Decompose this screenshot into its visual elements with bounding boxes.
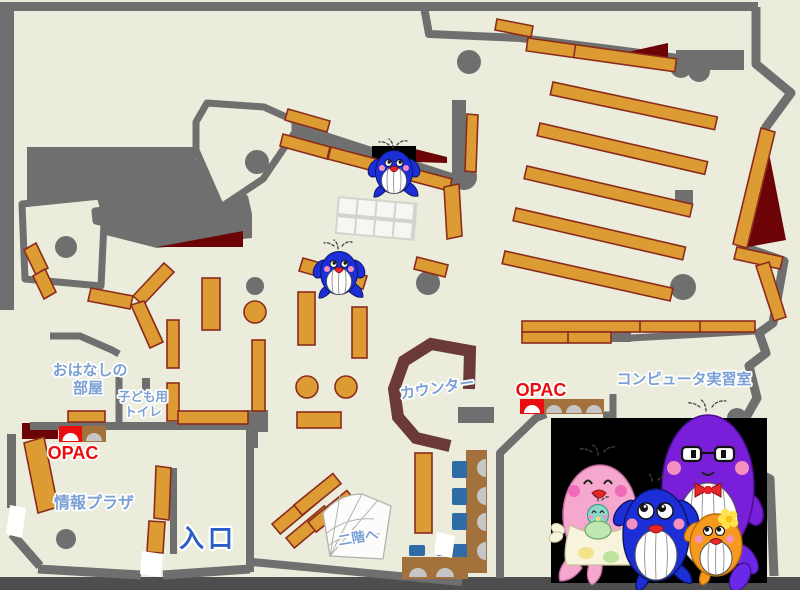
pillar	[56, 529, 76, 549]
opac-terminal-center	[520, 399, 604, 414]
pillar	[55, 236, 77, 258]
pillar	[246, 277, 264, 295]
label-opac-left: OPAC	[48, 443, 99, 463]
label-opac-center: OPAC	[516, 380, 567, 400]
door-gap	[434, 532, 455, 558]
label-kids-toilet-2: トイレ	[124, 405, 162, 419]
floor-map-svg: おはなしの 部屋 子ども用 トイレ OPAC 情報プラザ 入口 カウンター OP…	[0, 0, 800, 590]
label-computer-room: コンピュータ実習室	[616, 370, 751, 388]
stairs-to-2f	[323, 494, 391, 559]
label-storytelling-room-2: 部屋	[73, 379, 103, 397]
chair	[452, 513, 467, 530]
mascot-family-panel	[548, 399, 768, 590]
chair	[409, 545, 425, 556]
table-grid	[335, 196, 418, 241]
chair	[452, 488, 467, 505]
chair	[452, 461, 467, 478]
pillar	[457, 50, 481, 74]
label-info-plaza: 情報プラザ	[54, 493, 134, 512]
opac-terminal-left	[59, 426, 106, 442]
pillar	[245, 150, 269, 174]
label-storytelling-room: おはなしの	[52, 362, 127, 379]
library-floor-map: おはなしの 部屋 子ども用 トイレ OPAC 情報プラザ 入口 カウンター OP…	[0, 0, 800, 590]
pillar	[688, 60, 710, 82]
label-kids-toilet: 子ども用	[118, 390, 168, 404]
pillar	[670, 274, 696, 300]
label-entrance: 入口	[179, 525, 237, 553]
